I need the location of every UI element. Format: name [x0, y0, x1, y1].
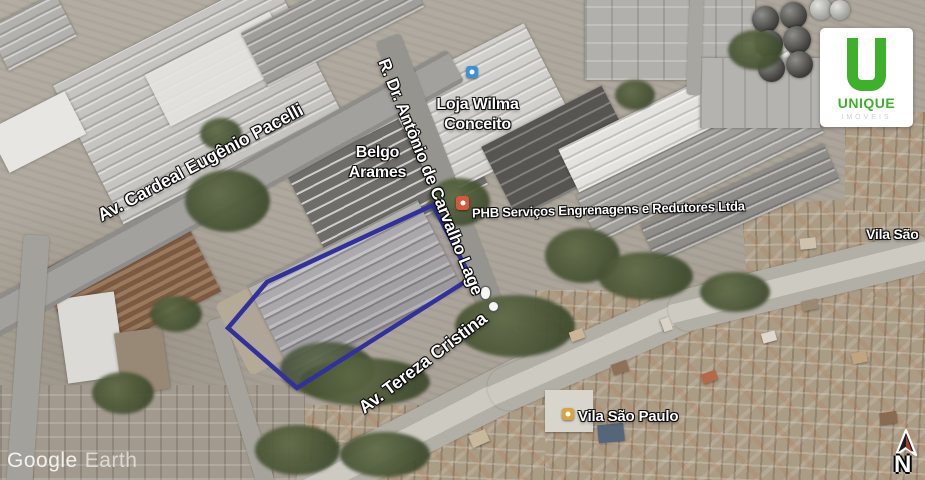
place-label-vila-sao: Vila São	[866, 226, 919, 242]
watermark-word: Google	[7, 449, 78, 472]
watermark-word: Earth	[85, 449, 138, 472]
place-label-loja-wilma-conceito: Loja Wilma Conceito	[420, 95, 535, 135]
logo-u-mark	[847, 38, 886, 91]
logo-name-text: UNIQUE	[820, 95, 913, 111]
road-sign-icon	[489, 302, 498, 311]
place-label-vila-sao-paulo: Vila São Paulo	[578, 408, 678, 425]
place-label-belgo-arames: Belgo Arames	[330, 143, 425, 183]
unique-logo: UNIQUE IMÓVEIS	[820, 28, 913, 127]
logo-subtitle-text: IMÓVEIS	[820, 114, 913, 121]
place-marker-icon[interactable]	[456, 196, 469, 210]
satellite-map[interactable]: Av. Cardeal Eugênio Pacelli R. Dr. Antôn…	[0, 0, 925, 480]
lodging-marker-icon[interactable]	[562, 408, 574, 420]
store-marker-icon[interactable]	[466, 66, 478, 78]
google-earth-watermark: GoogleEarth	[7, 449, 137, 473]
north-label: N	[894, 451, 911, 479]
